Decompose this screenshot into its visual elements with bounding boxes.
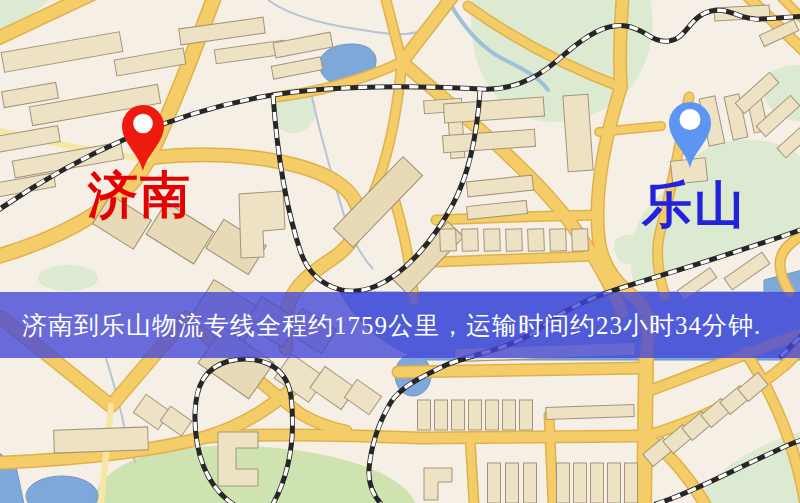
destination-pin-icon (665, 97, 715, 169)
pin-hole (680, 109, 701, 130)
origin-pin-icon (118, 100, 168, 172)
route-info-banner: 济南到乐山物流专线全程约1759公里，运输时间约23小时34分钟. (0, 292, 800, 358)
map-canvas (0, 0, 800, 503)
route-info-text: 济南到乐山物流专线全程约1759公里，运输时间约23小时34分钟. (0, 309, 761, 342)
destination-city-label: 乐山 (642, 180, 746, 230)
origin-city-label: 济南 (88, 170, 192, 220)
pin-hole (133, 114, 153, 134)
map-screenshot: 济南 乐山 济南到乐山物流专线全程约1759公里，运输时间约23小时34分钟. (0, 0, 800, 503)
